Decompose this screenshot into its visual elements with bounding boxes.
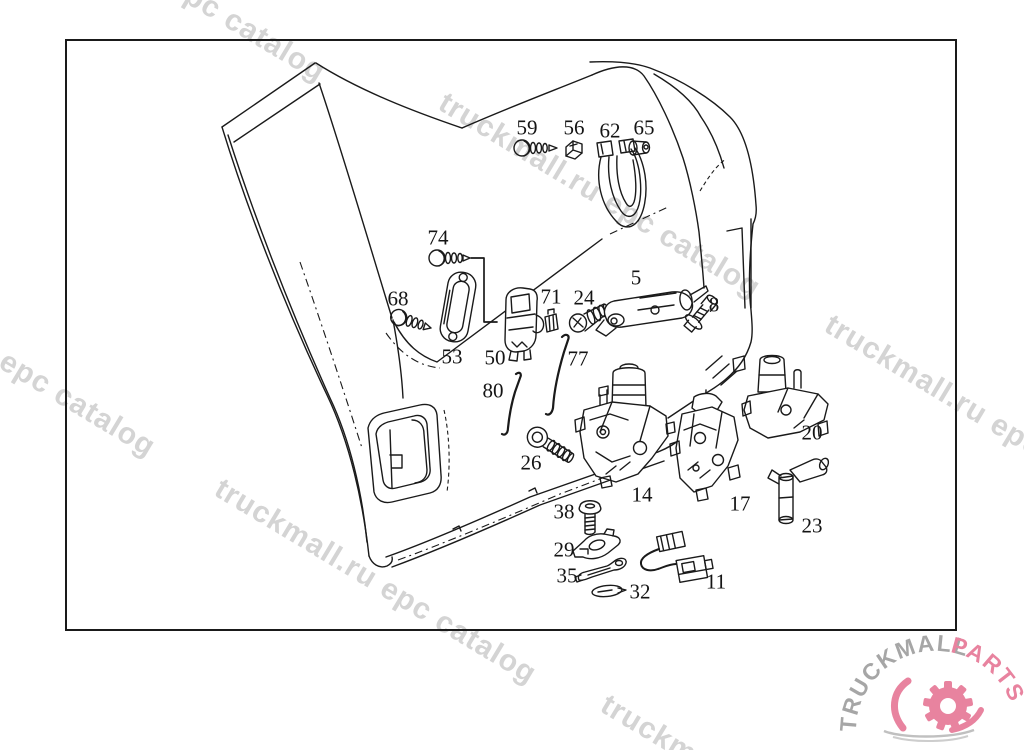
- part-number-65[interactable]: 65: [634, 118, 655, 139]
- part-number-56[interactable]: 56: [564, 118, 585, 139]
- brand-logo: TRUCKMALL PARTS: [834, 635, 1024, 750]
- part-number-23[interactable]: 23: [802, 516, 823, 537]
- part-number-24[interactable]: 24: [574, 288, 595, 309]
- part-number-53[interactable]: 53: [442, 347, 463, 368]
- part-number-20[interactable]: 20: [802, 423, 823, 444]
- part-number-38[interactable]: 38: [554, 502, 575, 523]
- part-number-26[interactable]: 26: [521, 453, 542, 474]
- part-number-77[interactable]: 77: [568, 349, 589, 370]
- part-number-11[interactable]: 11: [706, 572, 726, 593]
- part-number-68[interactable]: 68: [388, 289, 409, 310]
- part-number-74[interactable]: 74: [428, 228, 449, 249]
- part-number-59[interactable]: 59: [517, 118, 538, 139]
- part-number-32[interactable]: 32: [630, 582, 651, 603]
- part-number-17[interactable]: 17: [730, 494, 751, 515]
- logo-swoosh-gray: [884, 730, 974, 737]
- part-number-71[interactable]: 71: [541, 287, 562, 308]
- logo-swoosh-pink: [894, 681, 908, 728]
- part-number-29[interactable]: 29: [554, 540, 575, 561]
- epc-diagram-page: truckmall.ru epc catalog truckmall.ru ep…: [0, 0, 1024, 750]
- part-number-5[interactable]: 5: [631, 268, 642, 289]
- part-number-80[interactable]: 80: [483, 381, 504, 402]
- part-number-50[interactable]: 50: [485, 348, 506, 369]
- part-number-14[interactable]: 14: [632, 485, 653, 506]
- part-number-62[interactable]: 62: [600, 121, 621, 142]
- logo-gear-icon: [894, 680, 981, 731]
- part-number-35[interactable]: 35: [557, 566, 578, 587]
- part-number-8[interactable]: 8: [709, 295, 720, 316]
